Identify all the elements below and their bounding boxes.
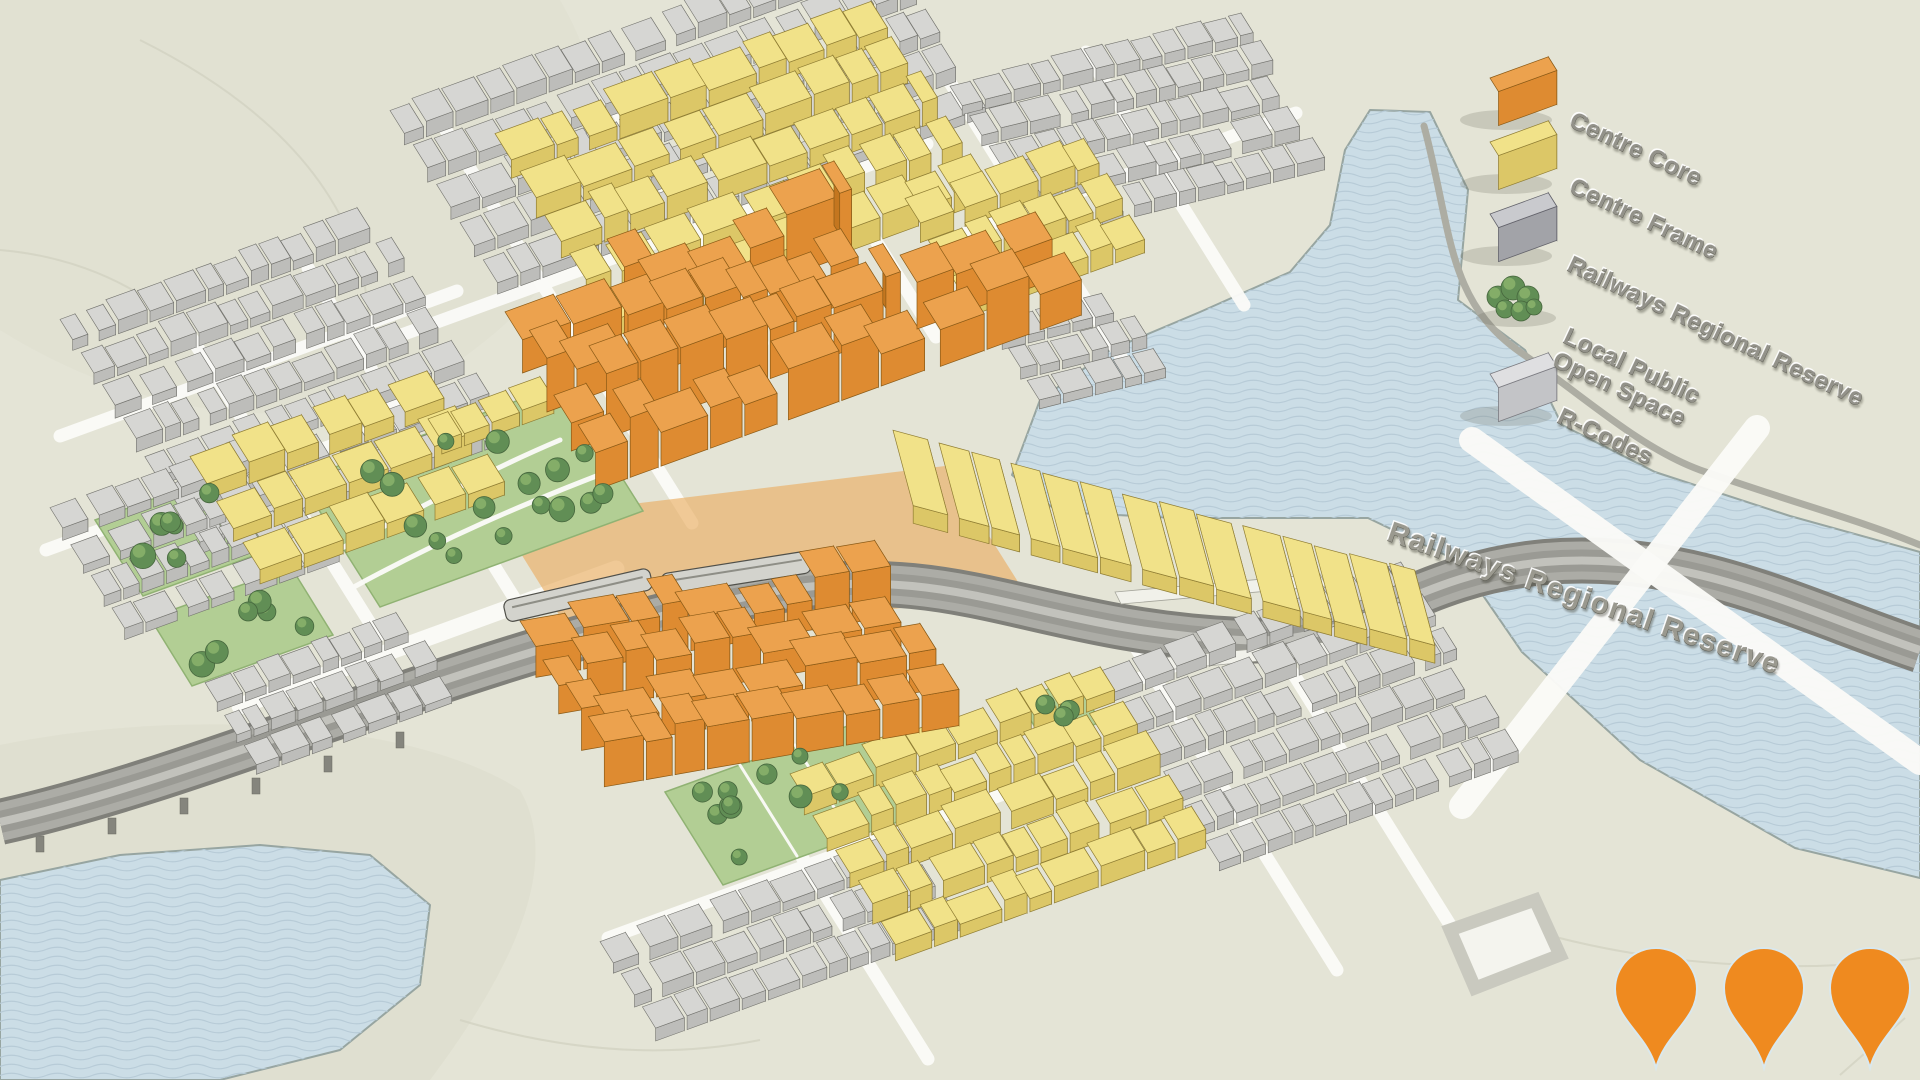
tree xyxy=(692,782,712,802)
map-pin-icon[interactable] xyxy=(1724,948,1804,1068)
legend: Centre Core Centre Frame Railways Region… xyxy=(1460,57,1868,471)
tree xyxy=(789,785,812,808)
tree xyxy=(446,548,462,564)
tree xyxy=(361,460,385,484)
contour-line xyxy=(460,1020,760,1050)
tree xyxy=(518,472,540,494)
white-building xyxy=(1450,900,1560,988)
tree xyxy=(757,764,777,784)
map-pin-icon[interactable] xyxy=(1830,948,1910,1068)
urban-design-map: Railways Regional Reserve Centre Core Ce… xyxy=(0,0,1920,1080)
tree xyxy=(722,796,740,814)
tree xyxy=(532,496,550,514)
map-markers xyxy=(1615,948,1910,1068)
tree xyxy=(205,640,228,663)
tree xyxy=(549,496,575,522)
viaduct-pier xyxy=(180,798,188,814)
tree xyxy=(486,430,510,454)
legend-label-centre-frame: Centre Frame xyxy=(1565,173,1722,265)
tree xyxy=(1054,707,1073,726)
tree xyxy=(495,528,512,545)
viaduct-pier xyxy=(324,756,332,772)
legend-swatch-y-block-icon xyxy=(1490,121,1557,190)
tree xyxy=(200,483,219,502)
tree xyxy=(832,784,849,801)
tree xyxy=(576,445,593,462)
tree xyxy=(593,484,613,504)
tree xyxy=(239,602,258,621)
legend-swatch-o-block-icon xyxy=(1490,57,1557,126)
tree xyxy=(546,458,570,482)
tree xyxy=(167,549,186,568)
tree xyxy=(792,748,808,764)
viaduct-pier xyxy=(396,732,404,748)
map-pin-icon[interactable] xyxy=(1615,948,1697,1068)
tree xyxy=(160,512,180,532)
tree xyxy=(438,433,454,449)
map-canvas: Railways Regional Reserve Centre Core Ce… xyxy=(0,0,1920,1080)
legend-swatch-lg-block-icon xyxy=(1490,193,1557,262)
viaduct-pier xyxy=(252,778,260,794)
tree xyxy=(429,533,446,550)
tree xyxy=(404,515,427,538)
tree xyxy=(473,497,495,519)
tree xyxy=(295,617,314,636)
tree xyxy=(731,849,747,865)
tree xyxy=(1036,695,1055,714)
viaduct-pier xyxy=(36,836,44,852)
tree xyxy=(130,543,156,569)
tree xyxy=(380,472,404,496)
viaduct-pier xyxy=(108,818,116,834)
